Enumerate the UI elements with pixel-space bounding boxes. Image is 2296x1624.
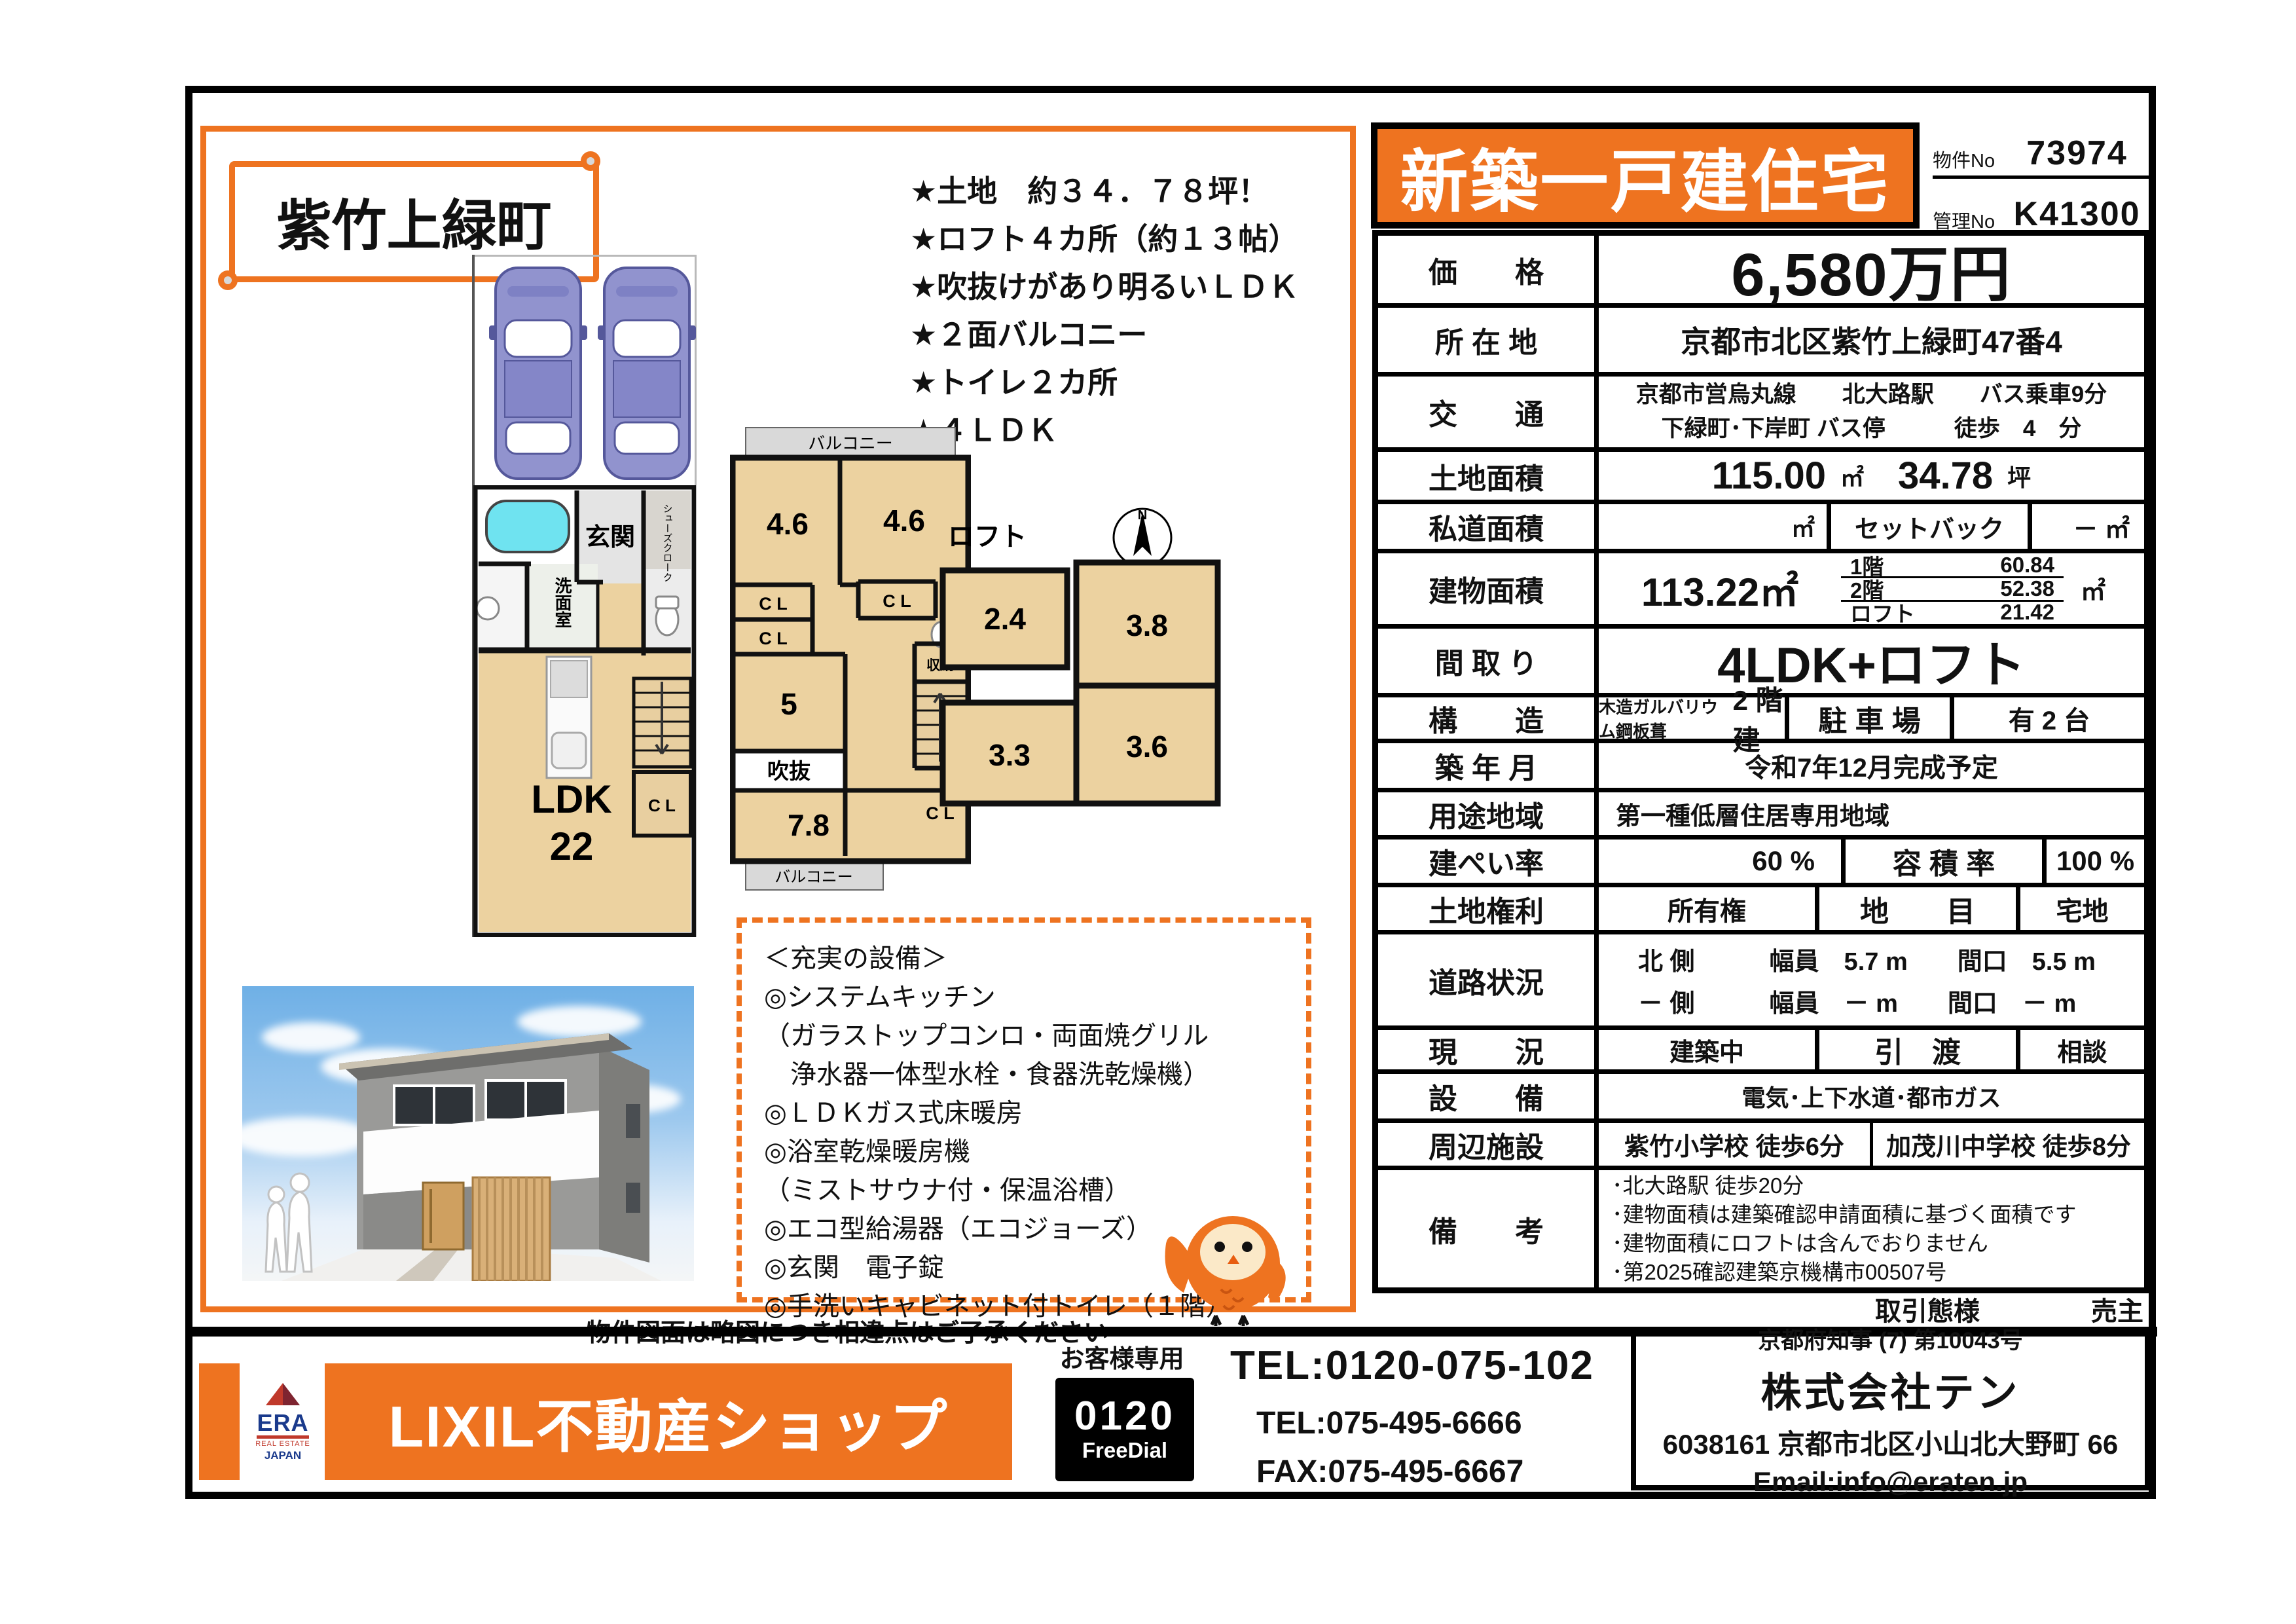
row-land-area: 土地面積 115.00 ㎡ 34.78 坪 [1378, 452, 2144, 504]
land-area-tsubo-unit: 坪 [2007, 459, 2031, 493]
property-type-title: 新築一戸建住宅 [1400, 126, 1890, 225]
row-price: 価 格 6,580万円 [1378, 236, 2144, 308]
feature-item: ★ロフト４カ所（約１３帖） [910, 215, 1355, 263]
room-size: 4.6 [767, 507, 809, 541]
parking-value: 有 2 台 [1954, 697, 2144, 739]
room-label-cl: C L [648, 796, 676, 815]
floor-plan-2f: バルコニー 4.6 4.6 C L C L C L 5 吹抜 収納 7.8 C … [730, 426, 971, 896]
row-location: 所 在 地 京都市北区紫竹上緑町47番4 [1378, 308, 2144, 377]
row-structure-label: 構 造 [1378, 697, 1599, 739]
room-label-shoes: シューズクローク [662, 504, 673, 582]
row-layout-label: 間 取 り [1378, 629, 1599, 693]
property-no-label: 物件No [1933, 145, 2004, 173]
land-right-value: 所有権 [1599, 887, 1815, 930]
row-built: 築 年 月 令和7年12月完成予定 [1378, 743, 2144, 792]
company-address: 6038161 京都市北区小山北大野町 66 [1663, 1422, 2119, 1462]
scroll-curl-icon [581, 151, 600, 171]
row-nearby-label: 周辺施設 [1378, 1123, 1599, 1166]
equipment-item: ◎浴室乾燥暖房機 [764, 1133, 1306, 1172]
equipment-item: （ガラストップコンロ・両面焼グリル [764, 1017, 1306, 1056]
row-building-area: 建物面積 113.22㎡ 1階 60.84 2階 52.38 ロフト [1378, 553, 2144, 629]
room-label-cl: C L [759, 629, 788, 648]
loft-label: ロフト [1850, 597, 1915, 628]
equipment-item: ◎ＬＤＫガス式床暖房 [764, 1094, 1306, 1133]
license-number: 京都府知事 (7) 第10043号 [1758, 1322, 2023, 1356]
car-icon [489, 268, 587, 479]
left-panel: 紫竹上緑町 ★土地 約３４．７８坪！ ★ロフト４カ所（約１３帖） ★吹抜けがあり… [200, 126, 1356, 1312]
property-no-value: 73974 [2004, 134, 2150, 173]
row-road: 道路状況 北 側 幅員 5.7 m 間口 5.5 m － 側 幅員 － m 間口… [1378, 934, 2144, 1030]
equipment-box: ＜充実の設備＞ ◎システムキッチン （ガラストップコンロ・両面焼グリル 浄水器一… [737, 917, 1311, 1302]
feature-list: ★土地 約３４．７８坪！ ★ロフト４カ所（約１３帖） ★吹抜けがあり明るいＬＤＫ… [910, 168, 1355, 454]
building-area-unit: ㎡ [2064, 571, 2123, 607]
property-type-banner: 新築一戸建住宅 [1371, 122, 1920, 229]
row-coverage-label: 建ぺい率 [1378, 840, 1599, 883]
row-remarks: 備 考 ･北大路駅 徒歩20分 ･建物面積は建築確認申請面積に基づく面積です ･… [1378, 1170, 2144, 1288]
row-zoning-label: 用途地域 [1378, 792, 1599, 835]
room-size: 3.8 [1126, 608, 1168, 642]
room-label-entrance: 玄関 [585, 524, 635, 551]
row-utilities-value: 電気･上下水道･都市ガス [1599, 1074, 2144, 1118]
loft-area: 21.42 [2000, 600, 2054, 625]
deal-type-value: 売主 [2091, 1290, 2143, 1328]
era-logo: ERA REAL ESTATE JAPAN [246, 1363, 319, 1480]
row-structure: 構 造 木造ガルバリウム鋼板葺 2 階建 駐 車 場 有 2 台 [1378, 697, 2144, 743]
customer-only-label: お客様専用 [1038, 1338, 1205, 1375]
row-land-right: 土地権利 所有権 地 目 宅地 [1378, 887, 2144, 934]
car-icon [598, 268, 696, 479]
far-value: 100 % [2047, 840, 2144, 883]
freedial-logo: 0120 FreeDial [1055, 1378, 1194, 1481]
row-zoning-value: 第一種低層住居専用地域 [1599, 792, 2144, 835]
room-label-void: 吹抜 [767, 759, 811, 783]
room-size: 3.6 [1126, 729, 1168, 764]
remark-line: ･建物面積は建築確認申請面積に基づく面積です [1612, 1200, 2077, 1229]
room-size: 2.4 [984, 602, 1026, 636]
remark-line: ･建物面積にロフトは含んでおりません [1612, 1229, 1988, 1258]
scroll-curl-icon [218, 270, 238, 290]
feature-item: ★４ＬＤＫ [910, 407, 1355, 454]
room-size: 4.6 [883, 504, 925, 538]
land-area-m2-unit: ㎡ [1840, 459, 1864, 493]
era-country: JAPAN [264, 1450, 301, 1462]
floor-plan-loft: ロフト N 2.4 3.8 3.6 3.3 [936, 492, 1224, 813]
row-location-label: 所 在 地 [1378, 308, 1599, 372]
brand-banner: LIXIL不動産ショップ [325, 1363, 1012, 1480]
row-nearby: 周辺施設 紫竹小学校 徒歩6分 加茂川中学校 徒歩8分 [1378, 1123, 2144, 1170]
room-size: 3.3 [989, 738, 1030, 772]
building-area-total: 113.22㎡ [1599, 553, 1841, 624]
feature-item: ★土地 約３４．７８坪！ [910, 168, 1355, 215]
row-road-label: 道路状況 [1378, 934, 1599, 1025]
equipment-item: 浄水器一体型水栓・食器洗乾燥機） [764, 1056, 1306, 1094]
row-remarks-label: 備 考 [1378, 1170, 1599, 1288]
row-price-label: 価 格 [1378, 236, 1599, 303]
parking-cars-icon [488, 263, 697, 485]
era-name: ERA [257, 1411, 308, 1439]
row-private-road-label: 私道面積 [1378, 504, 1599, 549]
property-info-table: 価 格 6,580万円 所 在 地 京都市北区紫竹上緑町47番4 交 通 京都市… [1372, 230, 2150, 1293]
room-label-cl: C L [759, 594, 788, 614]
row-utilities: 設 備 電気･上下水道･都市ガス [1378, 1074, 2144, 1123]
far-label: 容 積 率 [1841, 840, 2047, 883]
land-area-m2: 115.00 [1712, 454, 1826, 498]
row-layout-value: 4LDK+ロフト [1599, 629, 2144, 693]
loft-title: ロフト [948, 523, 1027, 551]
room-label-ldk: LDK [531, 777, 611, 821]
balcony-label: バルコニー [774, 868, 853, 886]
structure-material: 木造ガルバリウム鋼板葺 [1599, 694, 1724, 743]
parking-label: 駐 車 場 [1785, 697, 1954, 739]
remark-line: ･第2025確認建築京機構市00507号 [1612, 1258, 1947, 1287]
remark-line: ･北大路駅 徒歩20分 [1612, 1172, 1804, 1200]
row-zoning: 用途地域 第一種低層住居専用地域 [1378, 792, 2144, 840]
floor-plan-1f: 玄関 シューズクローク 洗面室 LDK 22 C L [473, 485, 696, 937]
site-boundary-line [473, 255, 696, 257]
row-utilities-label: 設 備 [1378, 1074, 1599, 1118]
feature-item: ★トイレ２カ所 [910, 359, 1355, 407]
room-size: 7.8 [788, 808, 829, 842]
control-no-value: K41300 [2004, 194, 2150, 234]
row-land-area-label: 土地面積 [1378, 452, 1599, 500]
house-illustration [242, 986, 694, 1281]
era-arrow-icon [262, 1382, 304, 1411]
brand-accent-bar [199, 1363, 240, 1480]
company-email: Email:info@eraten.jp [1753, 1466, 2028, 1498]
row-access-label: 交 通 [1378, 377, 1599, 447]
row-coverage: 建ぺい率 60 % 容 積 率 100 % [1378, 840, 2144, 887]
nearby-school1: 紫竹小学校 徒歩6分 [1599, 1123, 1873, 1166]
people-outline-icon [266, 1173, 312, 1272]
row-location-value: 京都市北区紫竹上緑町47番4 [1599, 308, 2144, 372]
era-subtitle: REAL ESTATE [255, 1441, 310, 1449]
row-private-road: 私道面積 ㎡ セットバック － ㎡ [1378, 504, 2144, 553]
status-value: 建築中 [1599, 1030, 1815, 1069]
nearby-school2: 加茂川中学校 徒歩8分 [1873, 1123, 2144, 1166]
handover-value: 相談 [2020, 1030, 2144, 1069]
compass-icon: N [1114, 508, 1171, 566]
land-area-tsubo: 34.78 [1898, 454, 1993, 498]
equipment-item: ◎システムキッチン [764, 978, 1306, 1017]
equipment-title: ＜充実の設備＞ [764, 940, 1306, 978]
setback-label: セットバック [1827, 504, 2032, 549]
access-line2: 下緑町･下岸町 バス停 徒歩 4 分 [1662, 412, 2082, 446]
company-name: 株式会社テン [1760, 1359, 2020, 1418]
land-category-label: 地 目 [1815, 887, 2020, 930]
row-built-label: 築 年 月 [1378, 743, 1599, 788]
row-built-value: 令和7年12月完成予定 [1599, 743, 2144, 788]
handover-label: 引 渡 [1815, 1030, 2020, 1069]
house-render [242, 986, 694, 1281]
freedial-label: FreeDial [1082, 1437, 1167, 1464]
reference-numbers: 物件No 73974 管理No K41300 [1933, 118, 2150, 240]
building-area-floors: 1階 60.84 2階 52.38 ロフト 21.42 [1841, 555, 2064, 623]
property-no-row: 物件No 73974 [1933, 118, 2150, 179]
row-building-area-label: 建物面積 [1378, 553, 1599, 624]
floor1-area: 60.84 [2000, 553, 2054, 578]
freedial-number: 0120 [1074, 1395, 1175, 1437]
road-line1: 北 側 幅員 5.7 m 間口 5.5 m [1638, 941, 2096, 977]
row-status: 現 況 建築中 引 渡 相談 [1378, 1030, 2144, 1074]
private-road-unit: ㎡ [1599, 504, 1827, 549]
room-label-cl: C L [883, 591, 911, 611]
row-price-value: 6,580万円 [1599, 236, 2144, 303]
road-line2: － 側 幅員 － m 間口 － m [1638, 983, 2076, 1019]
room-size: 5 [780, 687, 797, 721]
room-label-wash: 洗面室 [553, 577, 572, 628]
feature-item: ★吹抜けがあり明るいＬＤＫ [910, 263, 1355, 311]
row-status-label: 現 況 [1378, 1030, 1599, 1069]
room-size-ldk: 22 [550, 824, 594, 868]
property-flyer: 紫竹上緑町 ★土地 約３４．７８坪！ ★ロフト４カ所（約１３帖） ★吹抜けがあり… [0, 0, 2296, 1624]
row-access: 交 通 京都市営烏丸線 北大路駅 バス乗車9分 下緑町･下岸町 バス停 徒歩 4… [1378, 377, 2144, 452]
brand-name: LIXIL不動産ショップ [388, 1380, 948, 1464]
sheet-border: 紫竹上緑町 ★土地 約３４．７８坪！ ★ロフト４カ所（約１３帖） ★吹抜けがあり… [185, 86, 2156, 1499]
feature-item: ★２面バルコニー [910, 311, 1355, 359]
floor2-area: 52.38 [2000, 576, 2054, 601]
town-name: 紫竹上緑町 [276, 182, 551, 261]
balcony-label: バルコニー [808, 434, 892, 453]
row-land-right-label: 土地権利 [1378, 887, 1599, 930]
land-category-value: 宅地 [2020, 887, 2144, 930]
coverage-value: 60 % [1599, 840, 1841, 883]
company-box: 京都府知事 (7) 第10043号 株式会社テン 6038161 京都市北区小山… [1631, 1329, 2150, 1490]
access-line1: 京都市営烏丸線 北大路駅 バス乗車9分 [1636, 378, 2107, 412]
setback-value: － ㎡ [2032, 504, 2144, 549]
